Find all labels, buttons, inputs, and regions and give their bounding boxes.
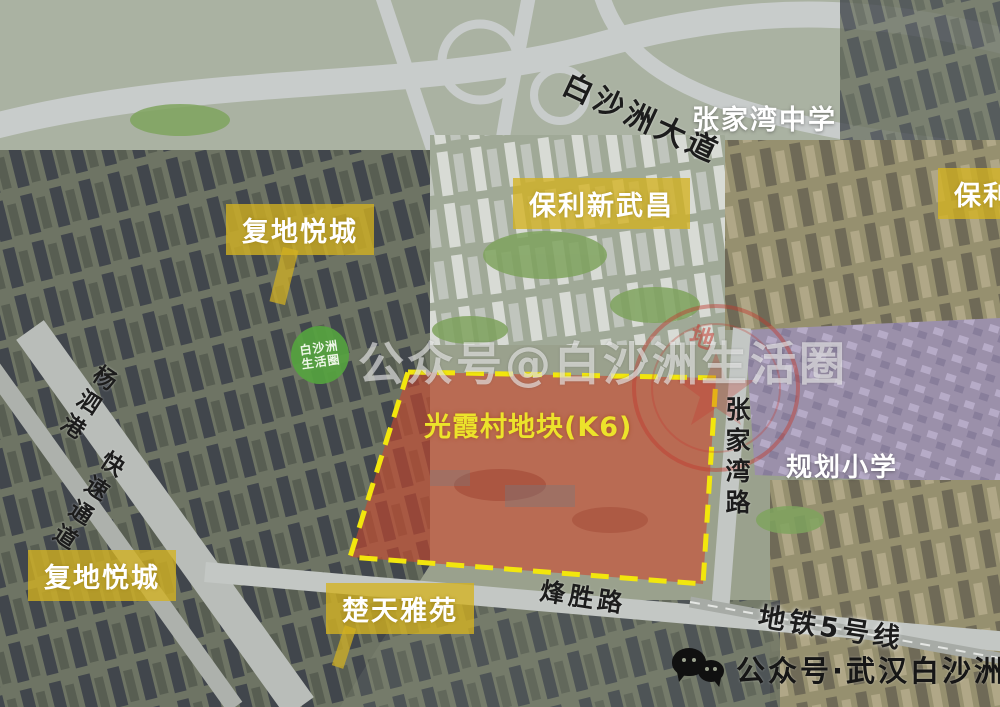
- place-label-baoli-xinwuchang: 保利新武昌: [513, 178, 690, 229]
- wechat-icon: [672, 646, 726, 692]
- bottom-right-watermark-text: 公众号·武汉白沙洲: [736, 648, 1000, 690]
- place-label-fudi-yuecheng-bottom: 复地悦城: [28, 550, 176, 601]
- annotated-aerial-map: 地 白沙洲大道 张家湾中学 保利新武昌 保利 复地悦城 公众号@白沙洲生活圈 白…: [0, 0, 1000, 707]
- road-label-yangsigang-lower: 快速通道: [40, 443, 132, 559]
- road-label-zhangjiawan-road: 张家湾路: [718, 396, 754, 520]
- road-label-yangsigang-upper: 杨泗港: [47, 357, 123, 448]
- place-label-planned-primary-school: 规划小学: [786, 447, 898, 484]
- site-parcel-label: 光霞村地块(K6): [424, 405, 632, 444]
- road-label-fengsheng-road: 烽胜路: [538, 571, 630, 620]
- place-label-zhangjiawan-middle-school: 张家湾中学: [692, 98, 837, 137]
- place-label-fudi-yuecheng-top: 复地悦城: [226, 204, 374, 255]
- bottom-right-watermark: 公众号·武汉白沙洲: [672, 646, 1000, 692]
- fudi-top-label-tail: [269, 247, 298, 305]
- place-label-baoli-right-partial: 保利: [938, 168, 1000, 219]
- green-logo-badge: 白沙洲 生活圈: [287, 322, 353, 388]
- annotation-layer: 白沙洲大道 张家湾中学 保利新武昌 保利 复地悦城 公众号@白沙洲生活圈 白沙洲…: [0, 0, 1000, 707]
- center-watermark-text: 公众号@白沙洲生活圈: [358, 328, 848, 394]
